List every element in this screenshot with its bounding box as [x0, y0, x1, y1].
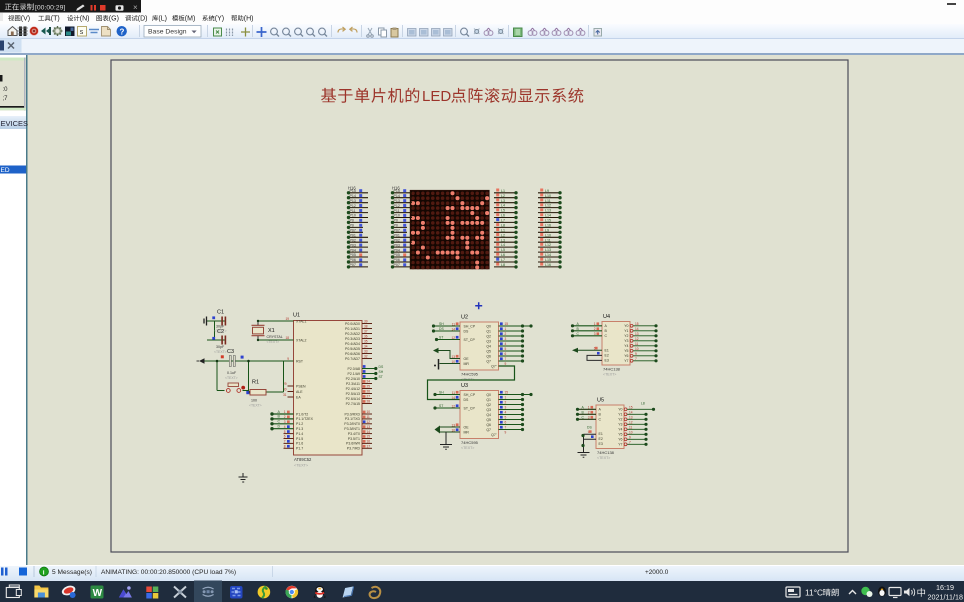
svg-text:MR: MR: [464, 362, 470, 366]
svg-text:15: 15: [629, 406, 633, 410]
svg-text:D: D: [278, 425, 281, 429]
svg-text:<TEXT>: <TEXT>: [267, 340, 280, 344]
svg-text:Q6: Q6: [486, 354, 491, 358]
svg-text:10: 10: [629, 431, 633, 435]
svg-text:L9: L9: [545, 228, 549, 232]
svg-text:1: 1: [284, 410, 286, 414]
svg-text:7: 7: [635, 357, 637, 361]
svg-text:Y6: Y6: [618, 438, 622, 442]
svg-text:U3: U3: [461, 383, 468, 389]
svg-text:B: B: [278, 415, 281, 419]
svg-text:P1.0/T2: P1.0/T2: [296, 412, 308, 416]
svg-text:Y1: Y1: [624, 329, 628, 333]
svg-text:L12: L12: [545, 243, 551, 247]
svg-text:Q5: Q5: [486, 418, 491, 422]
svg-text:Q7: Q7: [486, 428, 491, 432]
svg-text:P03: P03: [350, 243, 356, 247]
svg-text:P14: P14: [350, 194, 356, 198]
svg-text:P01: P01: [394, 234, 400, 238]
svg-text:5: 5: [505, 416, 507, 420]
svg-text:ST: ST: [439, 404, 443, 408]
svg-text:L13: L13: [545, 248, 551, 252]
svg-text:4: 4: [505, 342, 507, 346]
svg-text:L14: L14: [545, 253, 551, 257]
svg-text:1: 1: [505, 327, 507, 331]
svg-text:P01: P01: [350, 234, 356, 238]
svg-text:E3: E3: [599, 442, 603, 446]
svg-text:ST_CP: ST_CP: [464, 338, 476, 342]
svg-text:7: 7: [505, 426, 507, 430]
svg-text:Q3: Q3: [486, 339, 491, 343]
svg-text:P3.6/WR: P3.6/WR: [346, 442, 360, 446]
svg-text:7: 7: [629, 441, 631, 445]
svg-text:SH_CP: SH_CP: [464, 393, 476, 397]
svg-text:P15: P15: [394, 189, 400, 193]
svg-text:LED: LED: [422, 88, 451, 105]
svg-text:15: 15: [505, 322, 509, 326]
svg-text:3: 3: [284, 420, 286, 424]
svg-text:PSEN: PSEN: [296, 384, 306, 388]
svg-text:P12: P12: [394, 204, 400, 208]
svg-text:Q2: Q2: [486, 403, 491, 407]
svg-text:13: 13: [367, 425, 371, 429]
svg-text:P11: P11: [350, 209, 356, 213]
svg-text:34: 34: [364, 345, 368, 349]
svg-text:10: 10: [635, 347, 639, 351]
svg-text:12: 12: [629, 421, 633, 425]
svg-text:P0.0/AD0: P0.0/AD0: [345, 322, 360, 326]
svg-text:SH: SH: [439, 322, 444, 326]
svg-text:ST: ST: [379, 375, 383, 379]
svg-text:33: 33: [364, 350, 368, 354]
svg-text:SH: SH: [379, 370, 384, 374]
svg-text:L8: L8: [501, 263, 505, 267]
svg-text:<TEXT>: <TEXT>: [249, 404, 262, 408]
svg-text:P0.5/AD5: P0.5/AD5: [345, 347, 360, 351]
svg-text:11: 11: [367, 415, 371, 419]
svg-text:14: 14: [629, 411, 633, 415]
svg-text:L16: L16: [545, 263, 551, 267]
svg-text:Y6: Y6: [624, 354, 628, 358]
svg-text:37: 37: [364, 330, 368, 334]
svg-text:+2000.0: +2000.0: [645, 569, 669, 576]
svg-text:31: 31: [283, 393, 287, 397]
svg-text:2021/11/18: 2021/11/18: [928, 593, 963, 602]
svg-text:74HC138: 74HC138: [597, 450, 615, 455]
svg-text:4: 4: [505, 411, 507, 415]
svg-text:SH_CP: SH_CP: [464, 324, 476, 328]
svg-text:3: 3: [505, 406, 507, 410]
svg-text:L4: L4: [501, 204, 505, 208]
svg-text:6: 6: [505, 421, 507, 425]
svg-text:A: A: [278, 410, 281, 414]
svg-text:P11: P11: [394, 209, 400, 213]
svg-text:9: 9: [629, 436, 631, 440]
svg-text:P1.7: P1.7: [296, 447, 303, 451]
svg-text:L16: L16: [545, 224, 551, 228]
svg-text:P10: P10: [394, 214, 400, 218]
svg-text:74HC595: 74HC595: [461, 440, 479, 445]
svg-text:Q7: Q7: [486, 359, 491, 363]
svg-text:L7: L7: [501, 219, 505, 223]
svg-text:Y7: Y7: [624, 359, 628, 363]
svg-text:s: s: [80, 29, 84, 36]
svg-text:2: 2: [588, 411, 590, 415]
svg-text:<TEXT>: <TEXT>: [461, 446, 474, 450]
svg-text:P0: P0: [394, 219, 398, 223]
svg-text:P1.6: P1.6: [296, 442, 303, 446]
svg-text:L11: L11: [545, 238, 551, 242]
svg-text:AT89C52: AT89C52: [294, 457, 312, 462]
svg-text:L14: L14: [545, 214, 551, 218]
svg-text:Y0: Y0: [624, 324, 628, 328]
svg-text:Q5: Q5: [486, 349, 491, 353]
svg-text:100: 100: [251, 399, 257, 403]
svg-text:U5: U5: [597, 398, 604, 404]
svg-text:14: 14: [451, 396, 455, 400]
svg-text:P0: P0: [394, 224, 398, 228]
svg-text:17: 17: [367, 445, 371, 449]
svg-text:35: 35: [364, 340, 368, 344]
svg-text:10: 10: [367, 410, 371, 414]
svg-text:P1.5: P1.5: [296, 437, 303, 441]
svg-text:(Y): (Y): [215, 16, 224, 23]
svg-text:P0.2/AD2: P0.2/AD2: [345, 332, 360, 336]
svg-text:15: 15: [505, 391, 509, 395]
svg-text:P0.4/AD4: P0.4/AD4: [345, 342, 360, 346]
svg-text:ED: ED: [1, 167, 10, 174]
svg-text:CRYSTAL: CRYSTAL: [267, 335, 283, 339]
svg-text:Y0: Y0: [618, 408, 622, 412]
svg-text:13: 13: [635, 332, 639, 336]
svg-text:P3.0/RXD: P3.0/RXD: [344, 412, 360, 416]
svg-text:P14: P14: [394, 194, 400, 198]
svg-text:9: 9: [287, 357, 289, 361]
svg-text:P2.0/A8: P2.0/A8: [348, 367, 361, 371]
svg-text:EA: EA: [296, 395, 301, 399]
svg-text:P1.2: P1.2: [296, 422, 303, 426]
svg-text:L15: L15: [545, 219, 551, 223]
svg-text:P2.4/A12: P2.4/A12: [346, 387, 360, 391]
svg-text:14: 14: [635, 327, 639, 331]
svg-text:L1: L1: [501, 228, 505, 232]
svg-text:Y3: Y3: [624, 339, 628, 343]
svg-text:P0.7/AD7: P0.7/AD7: [345, 357, 360, 361]
svg-text:Q4: Q4: [486, 344, 491, 348]
svg-text:L9: L9: [545, 189, 549, 193]
svg-text:L13: L13: [545, 209, 551, 213]
svg-text:ALE: ALE: [296, 390, 303, 394]
svg-text:E3: E3: [605, 359, 609, 363]
svg-text:P04: P04: [350, 248, 356, 252]
svg-text:ST: ST: [439, 336, 443, 340]
svg-text:30pF: 30pF: [216, 345, 225, 349]
svg-text:C: C: [278, 420, 281, 424]
svg-text:P07: P07: [350, 263, 356, 267]
svg-text:?: ?: [120, 28, 125, 37]
svg-text:74HC138: 74HC138: [603, 367, 621, 372]
svg-text:36: 36: [364, 335, 368, 339]
svg-text:39: 39: [364, 320, 368, 324]
svg-text:Y7: Y7: [618, 443, 622, 447]
svg-text:24: 24: [367, 380, 371, 384]
svg-text:2: 2: [594, 327, 596, 331]
svg-text:P3.7/RD: P3.7/RD: [347, 447, 361, 451]
svg-text:P07: P07: [350, 229, 356, 233]
svg-text:P05: P05: [350, 253, 356, 257]
svg-text:P3.3/INT1: P3.3/INT1: [344, 427, 360, 431]
svg-text:P2.5/A13: P2.5/A13: [346, 392, 360, 396]
svg-text:18: 18: [285, 336, 289, 340]
svg-text:(G): (G): [109, 16, 119, 23]
svg-text:DS: DS: [587, 426, 592, 430]
svg-text:XTAL2: XTAL2: [296, 338, 306, 342]
svg-text:11: 11: [635, 342, 639, 346]
svg-text:15: 15: [635, 322, 639, 326]
svg-text:5: 5: [284, 430, 286, 434]
svg-text:P07: P07: [394, 229, 400, 233]
svg-text:2: 2: [505, 332, 507, 336]
svg-text:26: 26: [367, 390, 371, 394]
svg-text:L15: L15: [545, 258, 551, 262]
svg-text:E1: E1: [605, 349, 609, 353]
svg-text:P2.1/A9: P2.1/A9: [348, 372, 361, 376]
svg-text:P3.2/INT0: P3.2/INT0: [344, 422, 360, 426]
svg-text:RST: RST: [296, 359, 304, 363]
svg-text:P03: P03: [394, 243, 400, 247]
svg-text:P3.5/T1: P3.5/T1: [348, 437, 360, 441]
svg-text:Y5: Y5: [624, 349, 628, 353]
svg-text:Y5: Y5: [618, 433, 622, 437]
svg-text:P1.3: P1.3: [296, 427, 303, 431]
svg-text:(H): (H): [244, 16, 254, 23]
svg-text:4: 4: [284, 425, 286, 429]
svg-text:1: 1: [588, 406, 590, 410]
svg-text:27: 27: [367, 395, 371, 399]
svg-text:16: 16: [367, 440, 371, 444]
svg-text:P13: P13: [394, 199, 400, 203]
svg-text:U1: U1: [293, 313, 300, 319]
svg-text:74HC595: 74HC595: [461, 372, 479, 377]
svg-text:11: 11: [629, 426, 633, 430]
svg-text:L6: L6: [501, 214, 505, 218]
svg-text:(L): (L): [158, 16, 167, 23]
svg-text:L5: L5: [501, 209, 505, 213]
svg-text:SH: SH: [439, 391, 444, 395]
svg-text:32: 32: [364, 355, 368, 359]
svg-text:L4: L4: [501, 243, 505, 247]
svg-text:Q0: Q0: [486, 393, 491, 397]
svg-text:3: 3: [594, 332, 596, 336]
svg-text:MR: MR: [464, 430, 470, 434]
svg-text:Q1: Q1: [486, 398, 491, 402]
svg-text:Q4: Q4: [486, 413, 491, 417]
svg-text:P0.6/AD6: P0.6/AD6: [345, 352, 360, 356]
svg-text:2: 2: [505, 401, 507, 405]
svg-text:L6: L6: [501, 253, 505, 257]
svg-text:L2: L2: [501, 194, 505, 198]
svg-text:Y1: Y1: [618, 413, 622, 417]
svg-text:U4: U4: [603, 314, 610, 320]
svg-text:9: 9: [505, 431, 507, 435]
svg-text:L11: L11: [545, 199, 551, 203]
svg-text:3: 3: [505, 337, 507, 341]
svg-text:<TEXT>: <TEXT>: [214, 329, 227, 333]
svg-text:E2: E2: [605, 354, 609, 358]
svg-text:P07: P07: [394, 263, 400, 267]
svg-text:5 Message(s): 5 Message(s): [52, 569, 92, 576]
svg-text:Y4: Y4: [618, 428, 622, 432]
svg-text:L8: L8: [501, 224, 505, 228]
svg-text::0: :0: [3, 87, 9, 93]
svg-text:9: 9: [635, 352, 637, 356]
svg-text:OE: OE: [464, 357, 470, 361]
svg-text:P10: P10: [350, 214, 356, 218]
svg-text:7: 7: [284, 440, 286, 444]
svg-text:Q1: Q1: [486, 329, 491, 333]
svg-text:Y2: Y2: [618, 418, 622, 422]
svg-text:(D): (D): [138, 16, 148, 23]
svg-text:L3: L3: [501, 199, 505, 203]
svg-text:P0: P0: [350, 224, 354, 228]
svg-text:DS: DS: [379, 365, 384, 369]
svg-text:P05: P05: [394, 253, 400, 257]
svg-text:Q7': Q7': [491, 364, 497, 368]
svg-text:1: 1: [594, 322, 596, 326]
svg-text:C3: C3: [227, 349, 234, 355]
svg-text:14: 14: [367, 430, 371, 434]
svg-text:Q7': Q7': [491, 433, 497, 437]
svg-text:P0.3/AD3: P0.3/AD3: [345, 337, 360, 341]
svg-text:Y3: Y3: [618, 423, 622, 427]
svg-text:L8: L8: [641, 402, 645, 406]
svg-text:2: 2: [284, 415, 286, 419]
svg-text:38: 38: [364, 325, 368, 329]
svg-text:P13: P13: [350, 199, 356, 203]
svg-text:<TEXT>: <TEXT>: [597, 456, 610, 460]
svg-text:P06: P06: [394, 258, 400, 262]
svg-text:C1: C1: [217, 310, 224, 316]
svg-text:P15: P15: [350, 189, 356, 193]
svg-text:EVICES: EVICES: [1, 119, 29, 128]
svg-text:<TEXT>: <TEXT>: [603, 373, 616, 377]
svg-text:W: W: [93, 588, 103, 599]
svg-text:P02: P02: [394, 238, 400, 242]
svg-text:P12: P12: [350, 204, 356, 208]
svg-text:6: 6: [505, 352, 507, 356]
svg-text:<TEXT>: <TEXT>: [294, 464, 309, 468]
svg-text:P1.1/T2EX: P1.1/T2EX: [296, 417, 314, 421]
svg-text:L3: L3: [501, 238, 505, 242]
svg-text:L10: L10: [545, 194, 551, 198]
svg-text:P2.3/A11: P2.3/A11: [346, 382, 360, 386]
svg-text:P02: P02: [350, 238, 356, 242]
svg-text:6: 6: [284, 435, 286, 439]
svg-text:(T): (T): [51, 16, 60, 23]
svg-text:[00:00:29]: [00:00:29]: [35, 4, 65, 11]
svg-text:8: 8: [284, 445, 286, 449]
svg-text:16:19: 16:19: [936, 583, 954, 592]
svg-text:12: 12: [635, 337, 639, 341]
svg-text:11°C: 11°C: [805, 588, 823, 598]
svg-text:L10: L10: [545, 233, 551, 237]
svg-text:P3.1/TXD: P3.1/TXD: [345, 417, 361, 421]
svg-text:0.1uF: 0.1uF: [227, 371, 237, 375]
svg-text:Q6: Q6: [486, 423, 491, 427]
svg-text:(M): (M): [185, 16, 196, 23]
svg-text:Q2: Q2: [486, 334, 491, 338]
svg-text:U2: U2: [461, 315, 468, 321]
svg-text:;7: ;7: [3, 96, 9, 102]
svg-text:1: 1: [505, 396, 507, 400]
svg-text:P0: P0: [350, 219, 354, 223]
svg-text:19: 19: [285, 317, 289, 321]
svg-text:E2: E2: [599, 437, 603, 441]
svg-text:L12: L12: [545, 204, 551, 208]
svg-text:DS: DS: [439, 327, 444, 331]
svg-text:<TEXT>: <TEXT>: [225, 376, 238, 380]
svg-text:ST_CP: ST_CP: [464, 406, 476, 410]
svg-text:E1: E1: [599, 432, 603, 436]
svg-text:P3.4/T0: P3.4/T0: [348, 432, 360, 436]
svg-text:25: 25: [367, 385, 371, 389]
svg-text:L1: L1: [501, 189, 505, 193]
svg-text:×: ×: [133, 3, 138, 12]
svg-text:P06: P06: [350, 258, 356, 262]
svg-text:Y2: Y2: [624, 334, 628, 338]
svg-text:P1.4: P1.4: [296, 432, 303, 436]
svg-text:12: 12: [367, 420, 371, 424]
svg-text:3: 3: [588, 416, 590, 420]
svg-text:Base Design: Base Design: [148, 29, 187, 36]
svg-text:OE: OE: [464, 425, 470, 429]
svg-text:Q0: Q0: [486, 324, 491, 328]
svg-text:L7: L7: [501, 258, 505, 262]
svg-text:i: i: [43, 570, 45, 577]
svg-text:7: 7: [505, 357, 507, 361]
svg-text:R1: R1: [252, 380, 259, 386]
svg-text:P2.6/A14: P2.6/A14: [346, 397, 360, 401]
svg-text:ANIMATING: 00:00:20.850000 (CP: ANIMATING: 00:00:20.850000 (CPU load 7%): [101, 569, 236, 576]
svg-text:28: 28: [367, 400, 371, 404]
svg-text:<TEXT>: <TEXT>: [214, 350, 227, 354]
svg-text:XTAL1: XTAL1: [296, 319, 306, 323]
svg-text:30pF: 30pF: [216, 325, 225, 329]
svg-text:5: 5: [505, 347, 507, 351]
svg-text:Y4: Y4: [624, 344, 628, 348]
svg-text:P0.1/AD1: P0.1/AD1: [345, 327, 360, 331]
svg-text:X1: X1: [268, 328, 275, 334]
svg-text:P04: P04: [394, 248, 400, 252]
svg-text:13: 13: [629, 416, 633, 420]
svg-text:L5: L5: [501, 248, 505, 252]
svg-text:L2: L2: [501, 233, 505, 237]
svg-text:Q3: Q3: [486, 408, 491, 412]
svg-text:P2.7/A15: P2.7/A15: [346, 402, 360, 406]
svg-text:(N): (N): [80, 16, 90, 23]
svg-text:15: 15: [367, 435, 371, 439]
svg-text:P2.2/A10: P2.2/A10: [346, 377, 360, 381]
svg-text:DS: DS: [464, 398, 470, 402]
svg-text:(V): (V): [21, 16, 30, 23]
svg-text:DS: DS: [464, 329, 470, 333]
